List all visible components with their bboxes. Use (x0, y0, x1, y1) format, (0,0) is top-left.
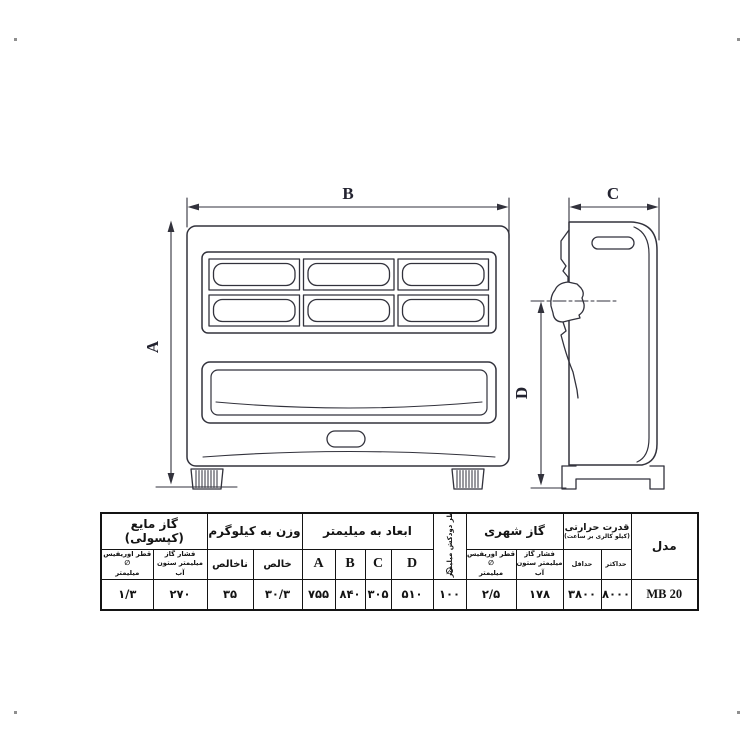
model-header: مدل (631, 513, 698, 579)
front-feet (191, 469, 484, 489)
front-window-curve (216, 402, 482, 408)
dim-a-value: ۷۵۵ (302, 579, 335, 610)
chimney-value: ۱۰۰ (433, 579, 466, 610)
weight-gross-label: ناخالص (207, 549, 253, 579)
dimension-arrow-c (569, 198, 659, 240)
thermal-min-value: ۳۸۰۰ (563, 579, 601, 610)
dimensions-header: ابعاد به میلیمتر (302, 513, 433, 549)
weight-header: وزن به کیلوگرم (207, 513, 302, 549)
weight-net-label: خالص (253, 549, 302, 579)
model-value: MB 20 (631, 579, 698, 610)
weight-net-value: ۳۰/۳ (253, 579, 302, 610)
liquid-orifice-label: قطر اوریفیس ∅ میلیمتر (101, 549, 153, 579)
liquid-gas-header: گاز مایع (کپسولی) (101, 513, 207, 549)
front-handle (327, 431, 365, 447)
front-bottom-curve (203, 452, 495, 458)
side-flue-knob (551, 282, 584, 322)
side-base (562, 466, 664, 489)
liquid-pressure-label: فشار گاز میلیمتر ستون آب (153, 549, 207, 579)
liquid-pressure-value: ۲۷۰ (153, 579, 207, 610)
dim-d-label: D (391, 549, 433, 579)
thermal-max-value: ۸۰۰۰ (601, 579, 631, 610)
liquid-orifice-value: ۱/۳ (101, 579, 153, 610)
dim-a-label: A (302, 549, 335, 579)
city-orifice-value: ۲/۵ (466, 579, 516, 610)
thermal-min-label: حداقل (563, 549, 601, 579)
dimension-label-c: C (607, 184, 619, 203)
thermal-subheader: (کیلو کالری بر ساعت) (564, 533, 631, 540)
chimney-header-cell: قطر دودکش میلیمتر ∅ (433, 513, 466, 579)
city-pressure-label: فشار گاز میلیمتر ستون آب (516, 549, 563, 579)
front-grille-slots (209, 259, 489, 326)
side-edge-line (634, 227, 649, 462)
side-profile-upper (561, 230, 569, 283)
city-orifice-label: قطر اوریفیس ∅ میلیمتر (466, 549, 516, 579)
dim-c-label: C (365, 549, 391, 579)
dimension-label-a: A (143, 340, 162, 353)
front-body (187, 226, 509, 466)
thermal-header-cell: قدرت حرارتی (کیلو کالری بر ساعت) (563, 513, 631, 549)
dimension-label-d: D (512, 387, 531, 399)
diameter-symbol: ∅ (446, 567, 454, 577)
weight-gross-value: ۳۵ (207, 579, 253, 610)
city-gas-header: گاز شهری (466, 513, 563, 549)
spec-table: گاز مایع (کپسولی) وزن به کیلوگرم ابعاد ب… (100, 512, 699, 611)
city-pressure-value: ۱۷۸ (516, 579, 563, 610)
dimension-arrow-b (187, 198, 509, 238)
dim-c-value: ۳۰۵ (365, 579, 391, 610)
dimension-label-b: B (342, 184, 353, 203)
thermal-header: قدرت حرارتی (564, 522, 631, 533)
dim-d-value: ۵۱۰ (391, 579, 433, 610)
side-vent-slot (592, 237, 634, 249)
dim-b-value: ۸۴۰ (335, 579, 365, 610)
thermal-max-label: حداکثر (601, 549, 631, 579)
front-window-outer (202, 362, 496, 423)
side-body (569, 222, 657, 465)
dimension-arrow-d (531, 305, 566, 488)
dim-b-label: B (335, 549, 365, 579)
technical-drawing: B A C D (0, 0, 750, 750)
